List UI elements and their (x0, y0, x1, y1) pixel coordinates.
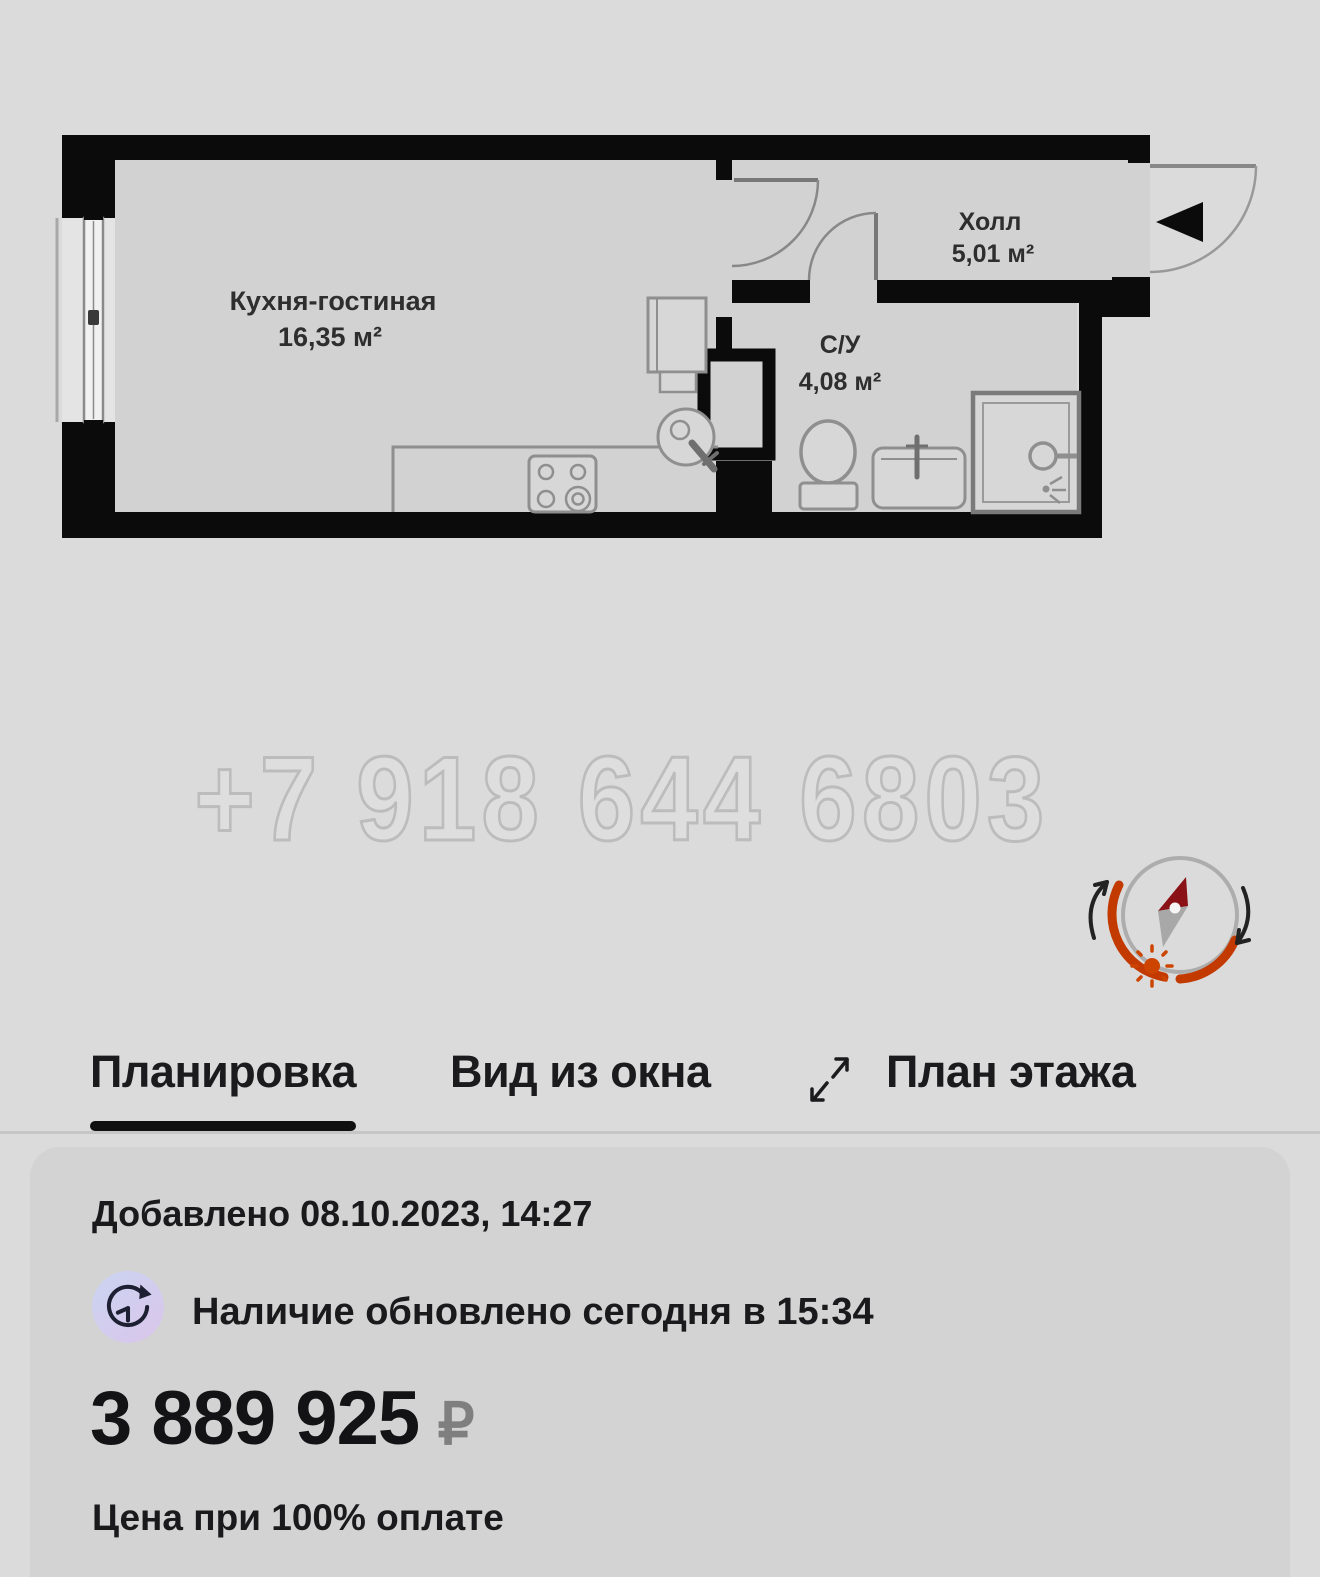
tab-layout-label: Планировка (90, 1046, 356, 1097)
expand-icon[interactable] (806, 1048, 854, 1104)
compass-needle-icon (1158, 877, 1188, 947)
availability-clock-icon (92, 1271, 164, 1343)
floor-plan-image[interactable]: Кухня-гостиная 16,35 м² Холл 5,01 м² С/У… (0, 125, 1320, 557)
tab-floor-plan-label: План этажа (886, 1046, 1135, 1097)
tab-floor-plan[interactable]: План этажа (886, 1046, 1135, 1131)
availability-text: Наличие обновлено сегодня в 15:34 (192, 1291, 874, 1334)
tab-bar: Планировка Вид из окна План этажа (0, 1046, 1320, 1134)
price-row: 3 889 925 ₽ (90, 1381, 474, 1457)
tab-window-view[interactable]: Вид из окна (450, 1046, 710, 1131)
entrance-door (1150, 166, 1256, 272)
price-value: 3 889 925 (90, 1376, 419, 1461)
sun-icon (1132, 946, 1172, 986)
listing-info-card: Добавлено 08.10.2023, 14:27 Наличие обно… (30, 1147, 1290, 1577)
tab-layout[interactable]: Планировка (90, 1046, 356, 1131)
room-area-hall: 5,01 м² (952, 240, 1034, 268)
watermark-phone: +7 918 644 6803 (0, 740, 1320, 870)
listing-screen: Кухня-гостиная 16,35 м² Холл 5,01 м² С/У… (0, 0, 1320, 1577)
toilet-icon (801, 421, 855, 483)
window (57, 213, 115, 427)
added-date-text: Добавлено 08.10.2023, 14:27 (92, 1193, 592, 1235)
active-tab-underline (90, 1121, 356, 1131)
svg-text:+7 918 644 6803: +7 918 644 6803 (195, 740, 1050, 866)
room-area-bathroom: 4,08 м² (799, 368, 881, 396)
room-name-kitchen: Кухня-гостиная (230, 286, 437, 316)
price-note: Цена при 100% оплате (92, 1497, 504, 1539)
room-area-kitchen: 16,35 м² (278, 322, 382, 352)
compass-rotation-control[interactable] (1075, 855, 1260, 1015)
entrance-arrow-icon (1156, 202, 1203, 242)
currency-symbol: ₽ (438, 1392, 475, 1457)
tab-window-view-label: Вид из окна (450, 1046, 710, 1097)
room-name-hall: Холл (959, 208, 1022, 236)
room-name-bathroom: С/У (820, 331, 861, 359)
shower-icon (973, 393, 1079, 512)
